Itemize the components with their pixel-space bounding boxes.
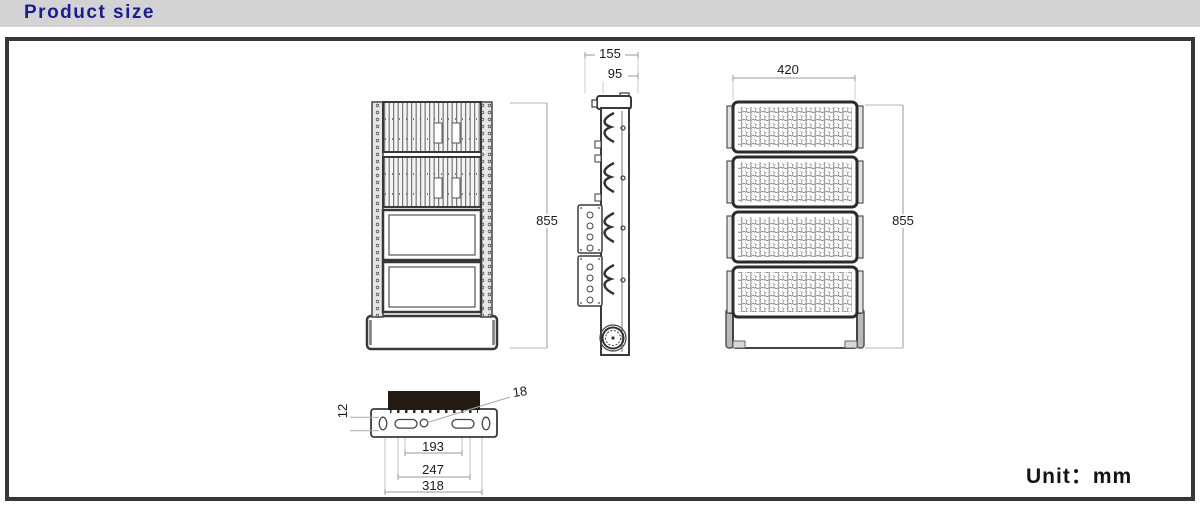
side-view-driver-box-2 <box>578 256 602 306</box>
front-view-module-3 <box>727 212 863 262</box>
dim-side-body-depth: 95 <box>602 67 628 81</box>
unit-note: Unit：mm <box>1026 460 1132 490</box>
dim-slot-spacing-inner: 193 <box>415 440 451 454</box>
front-width-dim-line <box>733 75 855 100</box>
page-title: Product size <box>24 2 155 24</box>
back-view-module-1 <box>383 102 481 152</box>
page: Product size <box>0 0 1200 507</box>
side-view-driver-box-1 <box>578 205 602 253</box>
front-view-module-4 <box>727 267 863 317</box>
back-view-module-2 <box>383 157 481 207</box>
front-view-left-leg <box>726 309 733 348</box>
back-view-module-3 <box>383 210 481 260</box>
back-view-right-rail <box>481 102 492 317</box>
back-view-bracket <box>367 316 497 349</box>
front-view <box>700 60 930 360</box>
front-view-module-2 <box>727 157 863 207</box>
side-view <box>570 45 650 360</box>
front-view-right-leg <box>857 309 864 348</box>
back-view-left-rail <box>372 102 383 317</box>
dim-side-total-depth: 155 <box>595 47 625 61</box>
back-view-module-4 <box>383 262 481 312</box>
dim-bracket-thickness: 12 <box>336 400 350 422</box>
dim-bracket-width: 318 <box>415 479 451 493</box>
dim-back-height: 855 <box>529 214 565 228</box>
bottom-view-plate <box>371 409 497 437</box>
side-view-top-cap <box>592 93 631 109</box>
header-band <box>0 0 1200 27</box>
dim-front-height: 855 <box>885 214 921 228</box>
dim-slot-spacing-outer: 247 <box>415 463 451 477</box>
bottom-view-housing-section <box>388 391 480 410</box>
front-view-module-1 <box>727 102 863 152</box>
dim-front-width: 420 <box>772 63 804 77</box>
